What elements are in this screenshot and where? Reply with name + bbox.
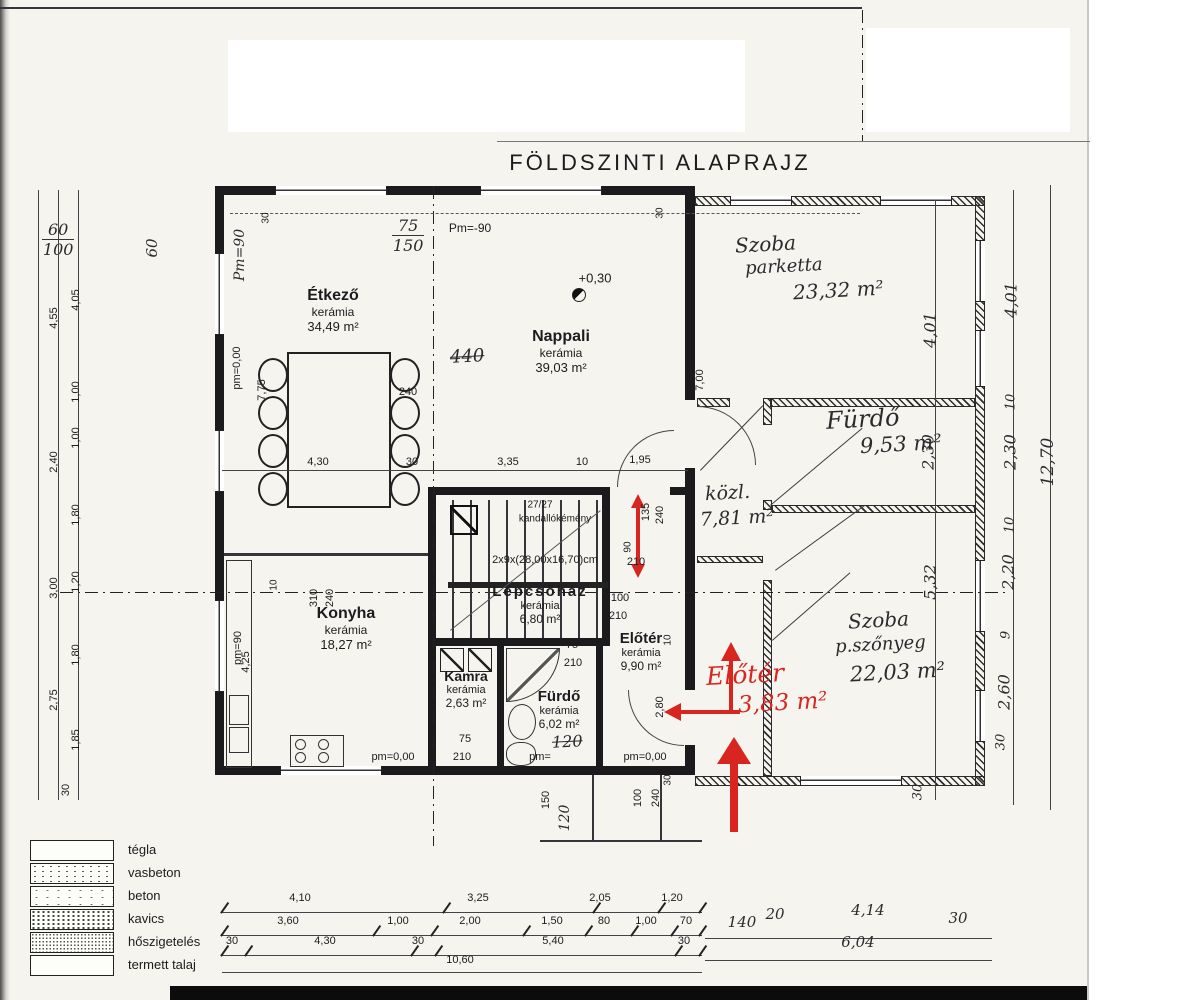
wall [434,487,609,495]
dim: 7,75 [256,379,268,400]
legend-label: hőszigetelés [128,934,200,949]
hw-dim: 9 [999,631,1014,639]
hw-room-finish: parketta [745,254,824,279]
drawing-title: FÖLDSZINTI ALAPRAJZ [509,150,811,176]
dimension-line [38,190,39,800]
room-finish: kerámia [470,600,610,612]
porch-line [660,775,662,840]
hw-dim: 30 [994,734,1009,751]
dim: 7,00 [694,369,706,390]
dim: 70 [680,915,692,927]
window [280,766,382,775]
dim: 100 [632,789,644,807]
pm-mark: pm=0,00 [371,751,414,763]
chimney-note: kandallókémény [519,514,591,525]
hw-number-crossed: 440 [449,345,484,368]
wall [224,553,434,556]
dim: 75 [459,733,471,745]
dim: 240 [654,506,666,524]
dimension-line [705,960,992,961]
fraction-bottom: 150 [392,236,424,255]
dim: 2,40 [48,451,60,472]
wall [428,638,610,646]
legend-label: termett talaj [128,957,196,972]
dim: 4,10 [289,892,310,904]
hw-dim: 2,20 [999,554,1018,590]
dim: 80 [598,915,610,927]
level-mark: +0,30 [579,271,612,286]
header-rule [497,141,1090,142]
legend-swatch-vasbeton [30,863,114,884]
hw-mark: 60 [143,238,161,257]
window [800,776,902,785]
hw-dim-total: 12,70 [1038,438,1058,487]
lintel-dashed-line [230,213,860,214]
dim: 4,55 [48,307,60,328]
window [275,186,387,195]
legend: tégla vasbeton beton kavics hőszigetelés… [0,832,210,982]
dim: 1,00 [70,427,82,448]
hw-room-name: közl. [704,481,750,505]
dim: 100 [611,592,629,604]
legend-label: beton [128,888,161,903]
pm-mark: pm= [529,751,551,763]
hw-fraction-75-150: 75 150 [392,216,424,255]
dim: 210 [609,610,627,622]
stairs-note: 2x9x(28,00x16,70)cm [492,554,598,566]
room-label-etkezo: Étkező kerámia 34,49 m² [267,287,399,334]
hw-number-crossed: 120 [552,731,583,752]
dimension-line [935,200,936,800]
fraction-top: 75 [392,216,424,236]
dim: 1,80 [70,644,82,665]
whiteout-box-left [228,40,745,132]
hw-dim: 20 [765,905,784,923]
room-finish: kerámia [513,705,605,717]
dim: 30 [655,207,666,218]
wall [428,487,436,775]
room-finish: kerámia [495,346,627,360]
chair [258,396,288,430]
hw-room-area: 7,81 m² [699,505,774,531]
window [215,430,224,492]
room-finish: kerámia [592,647,690,659]
room-area: 18,27 m² [285,637,407,652]
window [480,186,602,195]
room-area: 2,63 m² [430,696,502,710]
chimney-size-note: 27/27 [527,500,552,511]
dim: 2,75 [48,689,60,710]
red-room-area: 3,83 m² [737,688,828,719]
hw-dim: 120 [557,805,573,832]
hw-dim: 30 [948,909,967,927]
room-label-eloter: Előtér kerámia 9,90 m² [592,630,690,673]
dim: 210 [453,751,471,763]
legend-label: kavics [128,911,164,926]
chair [390,472,420,506]
window [976,330,985,387]
room-name: Előtér [592,630,690,647]
hw-dim: 5,32 [921,564,940,600]
hw-dim: 2,30 [1001,434,1020,470]
legend-swatch-termett-talaj [30,955,114,976]
room-label-lepcsohaz: Lépcsőház kerámia 6,80 m² [470,583,610,626]
scan-bottom-bar [170,986,1090,1000]
dim: 1,50 [541,915,562,927]
wall-hatched [697,556,763,563]
room-area: 39,03 m² [495,360,627,375]
room-area: 6,80 m² [470,612,610,626]
room-label-nappali: Nappali kerámia 39,03 m² [495,328,627,375]
red-arrow-up-small [729,660,733,712]
dim: 3,60 [277,915,298,927]
level-symbol [572,288,586,302]
dim: 30 [412,935,424,947]
dim: 10 [663,634,674,645]
window [880,196,952,205]
dim: 210 [627,556,645,568]
legend-label: tégla [128,842,156,857]
wall [670,487,695,495]
pm-mark: Pm=-90 [449,221,491,235]
dim: 30 [678,935,690,947]
kitchen-sink [229,727,249,753]
hw-dim: 30 [911,784,926,801]
dim: 10 [576,456,588,468]
porch-line [540,840,702,842]
room-name: Lépcsőház [470,583,610,600]
dimension-line [222,470,688,471]
window [976,690,985,742]
room-label-furdo: Fürdő kerámia 6,02 m² [513,688,605,731]
legend-swatch-kavics [30,909,114,930]
window [730,196,792,205]
chair [258,472,288,506]
room-finish: kerámia [267,305,399,319]
hw-dim: 140 [728,913,757,931]
dimension-line [1050,185,1051,810]
dimension-line [222,972,702,973]
dim: 4,30 [314,935,335,947]
dim: 1,00 [70,381,82,402]
red-arrow-left-head [664,703,681,721]
dim: 1,00 [635,915,656,927]
dim: 240 [399,386,417,398]
red-arrow-up-small-head [721,642,741,661]
dim: 240 [324,589,336,607]
dim: 2,80 [654,696,666,717]
room-name: Konyha [285,605,407,623]
stove-burner [318,739,329,750]
scan-top-line [0,7,862,9]
hw-dim: 4,14 [851,901,884,919]
room-area: 6,02 m² [513,717,605,731]
dim: 1,85 [70,729,82,750]
dim: 75 [566,639,578,651]
dim: 1,80 [70,504,82,525]
header-axis-line [862,10,863,141]
room-name: Kamra [430,668,502,684]
hw-mark: Pm=90 [232,229,248,281]
hw-dim: 2,30 [919,434,938,470]
dim: 2,00 [459,915,480,927]
porch-line [592,775,594,840]
legend-label: vasbeton [128,865,181,880]
chair [390,396,420,430]
red-arrow-left [680,710,740,714]
red-arrow-up-large [730,762,738,832]
dim: 30 [261,212,272,223]
room-name: Fürdő [513,688,605,705]
hw-dim: 10 [1003,517,1018,534]
dimension-line [78,190,79,800]
dim: 1,95 [629,454,650,466]
legend-swatch-hoszigeteles [30,932,114,953]
wall [685,745,695,775]
dim: 310 [308,589,320,607]
dim: 2,05 [589,892,610,904]
stove-burner [295,752,306,763]
window [215,600,224,692]
hw-dim: 2,60 [995,674,1014,710]
hw-dim-total: 6,04 [841,933,874,951]
hw-room-name: Fürdő [825,403,900,435]
dim: 135 [640,503,652,521]
hw-dim: 10 [1004,394,1019,411]
hw-dim: 4,01 [1002,282,1021,318]
chimney-block [450,505,478,535]
dim: 1,20 [70,571,82,592]
dim: 150 [540,791,552,809]
room-area: 34,49 m² [267,319,399,334]
dim: 4,30 [307,456,328,468]
dim: 4,05 [70,289,82,310]
hw-room-name: Szoba [847,606,909,633]
dimension-line [222,912,702,913]
dim: 30 [663,774,674,785]
dim: 1,20 [661,892,682,904]
dim-total: 10,60 [446,954,474,966]
dim: 30 [406,456,418,468]
scan-margin [1089,0,1204,1000]
dim: 240 [650,789,662,807]
dim: 30 [226,935,238,947]
hw-room-name: Szoba [734,230,796,257]
kitchen-sink [229,695,249,725]
dim: 90 [623,541,634,552]
room-name: Étkező [267,287,399,305]
stove-burner [295,739,306,750]
room-finish: kerámia [430,684,502,696]
wall-hatched [763,398,772,425]
wall-hatched [772,505,975,513]
dim: 3,35 [497,456,518,468]
window [215,253,224,335]
dining-table [287,352,391,508]
stove-burner [318,752,329,763]
dim: 4,25 [240,651,252,672]
wall [685,186,695,400]
room-label-konyha: Konyha kerámia 18,27 m² [285,605,407,652]
room-finish: kerámia [285,623,407,637]
legend-swatch-tegla [30,840,114,861]
window [976,240,985,302]
hw-room-area: 23,32 m² [792,276,884,305]
room-area: 9,90 m² [592,659,690,673]
legend-swatch-beton [30,886,114,907]
pm-mark: pm=0,00 [623,751,666,763]
dim: 1,00 [387,915,408,927]
red-room-name: Előtér [705,658,785,691]
whiteout-box-right [866,28,1070,132]
room-name: Nappali [495,328,627,346]
hw-room-area: 22,03 m² [849,658,945,687]
pm-mark: pm=0,00 [231,346,243,389]
scanned-floor-plan: FÖLDSZINTI ALAPRAJZ [0,0,1204,1000]
chair [258,434,288,468]
window [976,560,985,632]
dim: 3,00 [48,577,60,598]
axis-line [433,186,434,846]
red-arrow-up-large-head [717,737,751,764]
dim: 210 [564,657,582,669]
dim: 3,25 [467,892,488,904]
dim: 10 [269,579,280,590]
dim: 5,40 [542,935,563,947]
hw-dim: 4,01 [921,312,940,348]
room-label-kamra: Kamra kerámia 2,63 m² [430,668,502,710]
dim: 30 [60,784,72,796]
